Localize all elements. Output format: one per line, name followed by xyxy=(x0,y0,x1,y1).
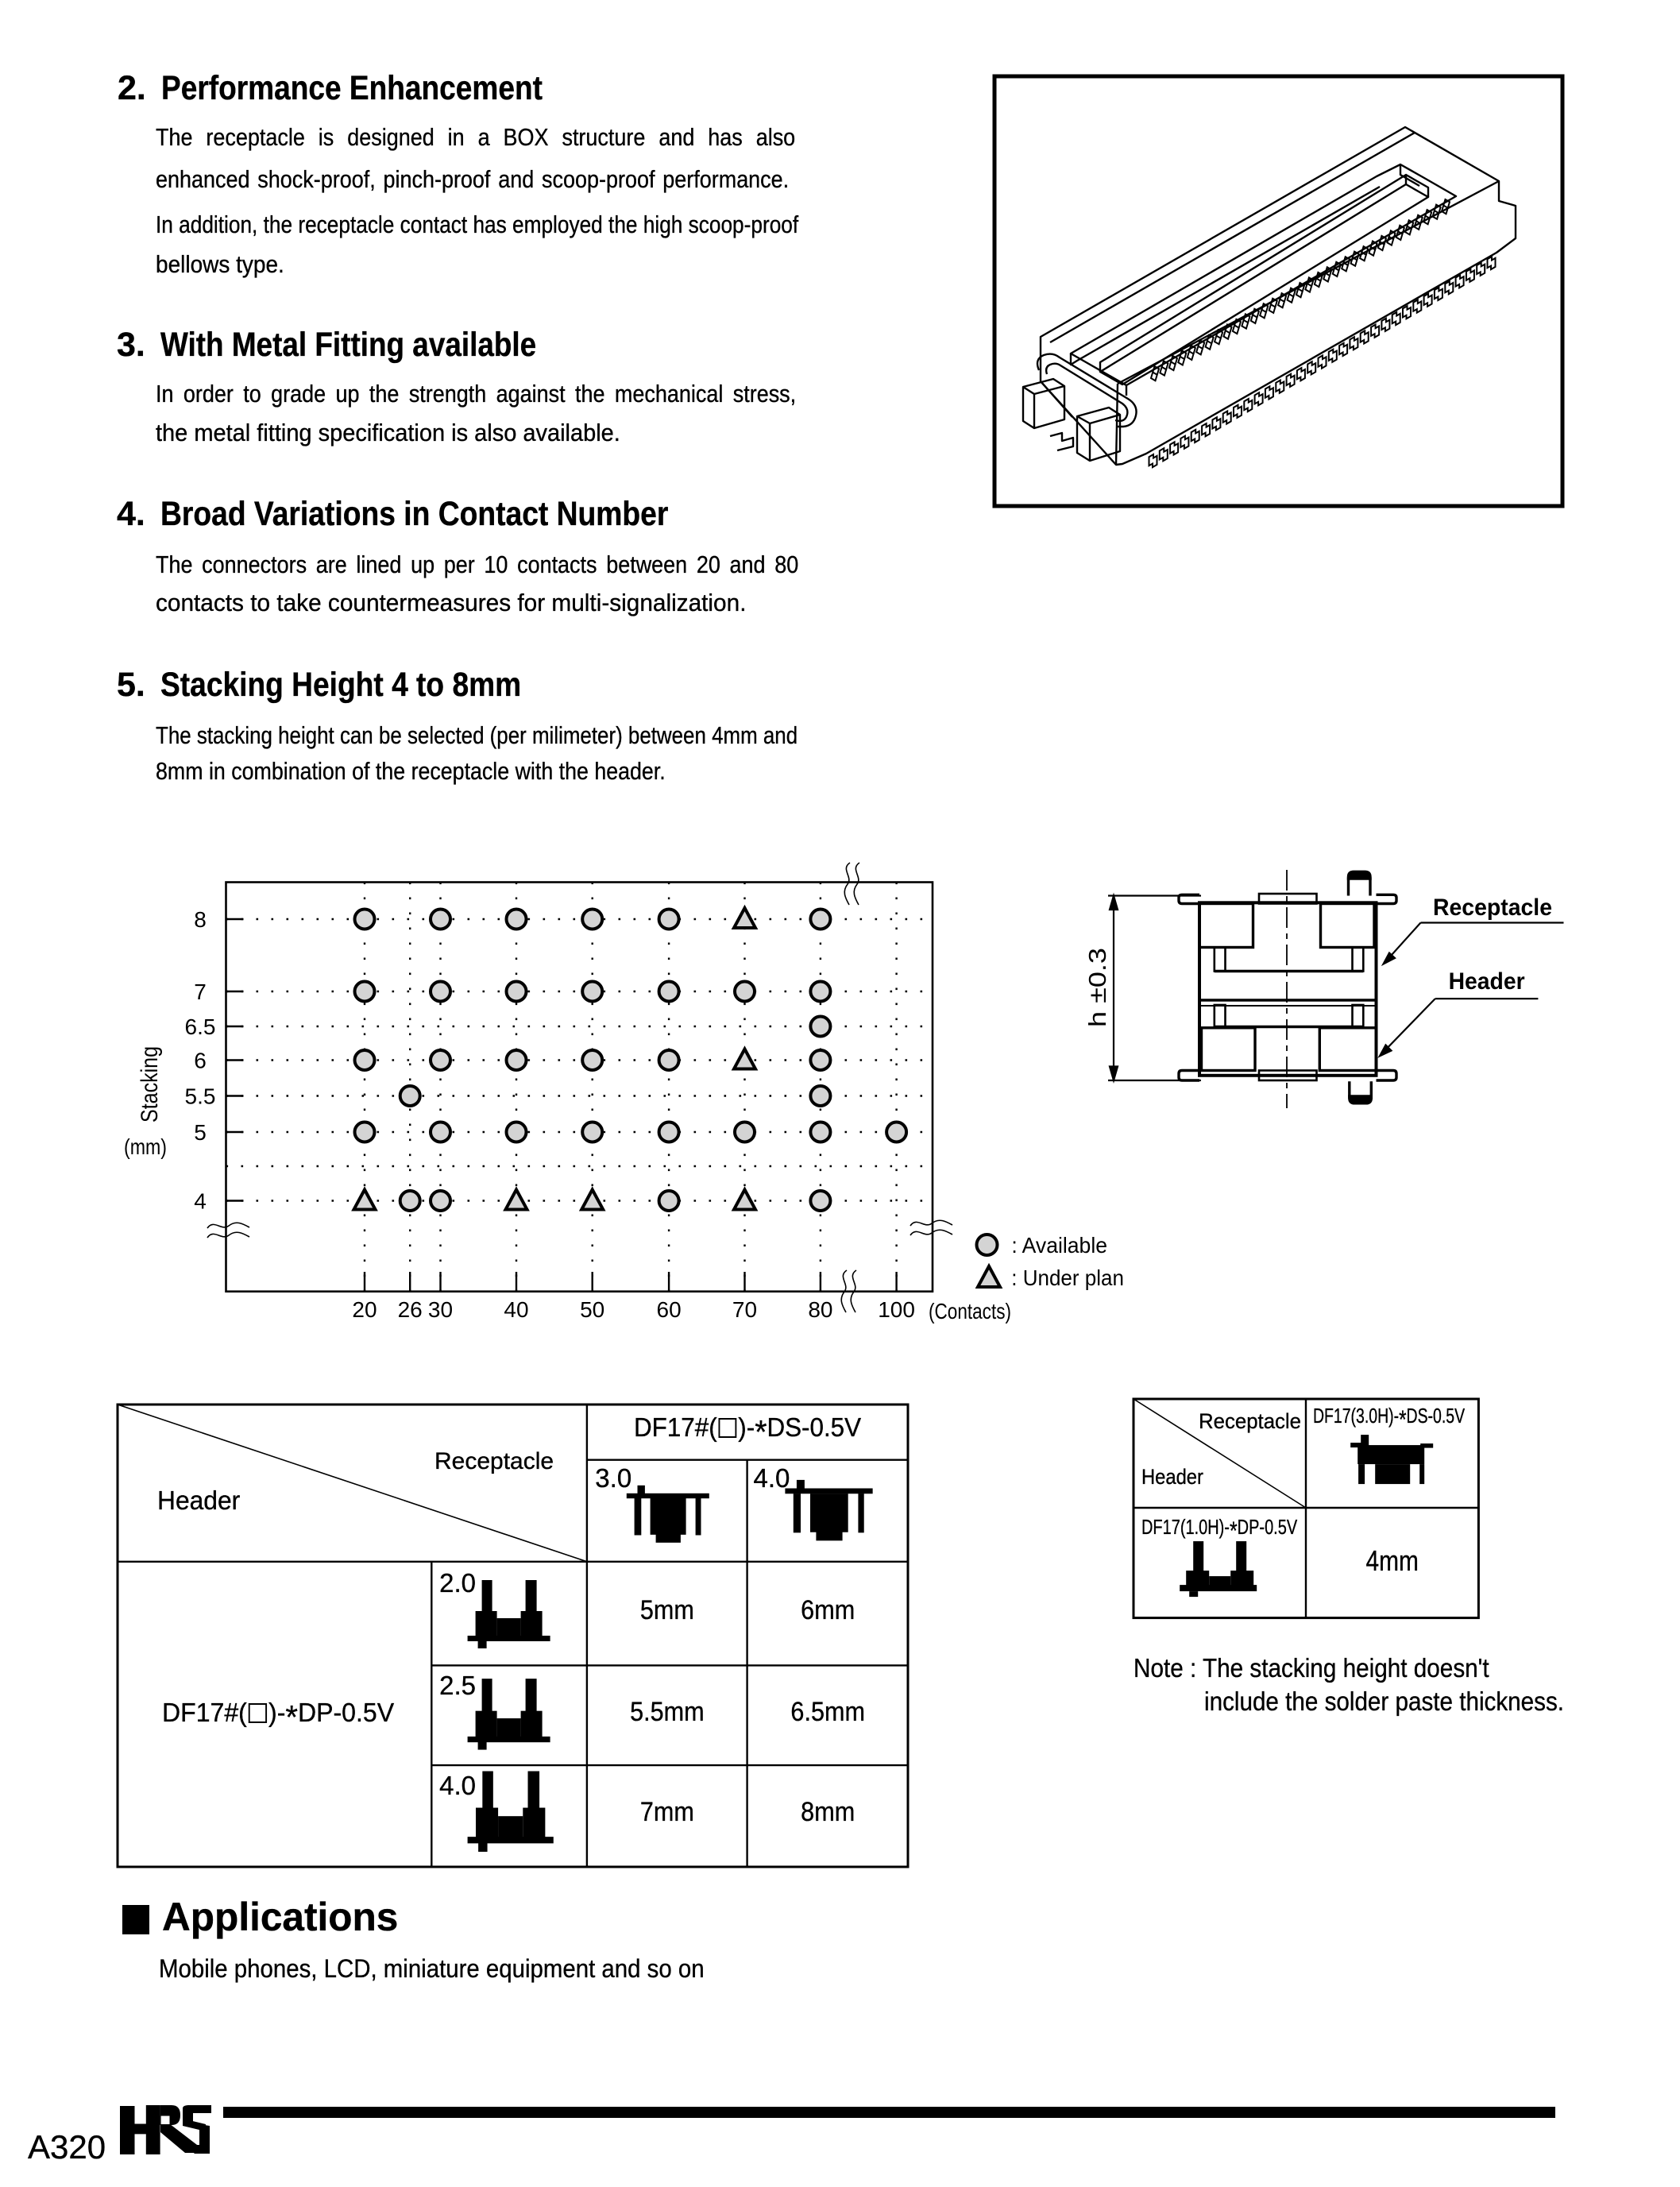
svg-text:: Under plan: : Under plan xyxy=(1006,1265,1124,1290)
svg-text:4: 4 xyxy=(194,1189,207,1214)
svg-text:(mm): (mm) xyxy=(124,1134,167,1159)
svg-text:30: 30 xyxy=(428,1297,453,1322)
svg-text:Stacking: Stacking xyxy=(137,1046,163,1122)
svg-text:6: 6 xyxy=(194,1049,207,1073)
svg-text:6.5: 6.5 xyxy=(185,1014,216,1039)
svg-text:7: 7 xyxy=(194,980,207,1004)
svg-text:50: 50 xyxy=(580,1297,604,1322)
svg-text:100: 100 xyxy=(878,1297,915,1322)
svg-text:(Contacts): (Contacts) xyxy=(929,1299,1011,1323)
svg-text:: Available: : Available xyxy=(1006,1233,1107,1258)
svg-text:26: 26 xyxy=(398,1297,423,1322)
svg-text:Header: Header xyxy=(1449,968,1525,995)
svg-text:60: 60 xyxy=(657,1297,682,1322)
svg-text:h ±0.3: h ±0.3 xyxy=(1083,948,1111,1027)
svg-text:20: 20 xyxy=(352,1297,377,1322)
svg-text:5.5: 5.5 xyxy=(185,1084,216,1109)
svg-text:40: 40 xyxy=(504,1297,528,1322)
svg-text:5: 5 xyxy=(194,1120,207,1145)
svg-text:8: 8 xyxy=(194,907,207,932)
svg-text:70: 70 xyxy=(732,1297,757,1322)
svg-text:80: 80 xyxy=(808,1297,832,1322)
svg-text:Receptacle: Receptacle xyxy=(1433,895,1552,921)
